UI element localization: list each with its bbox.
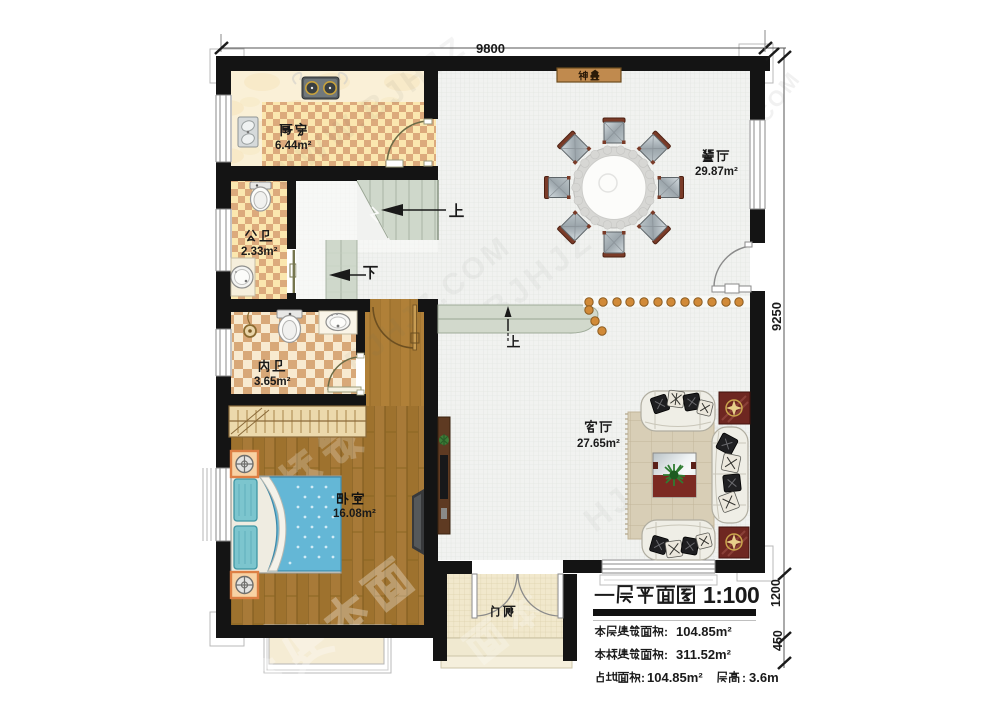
svg-text:104.85m²: 104.85m²	[676, 624, 732, 639]
svg-text:29.87m²: 29.87m²	[695, 166, 738, 178]
svg-text::: :	[641, 671, 645, 685]
svg-text:6.44m²: 6.44m²	[275, 140, 312, 152]
svg-text::: :	[664, 625, 668, 639]
svg-text:104.85m²: 104.85m²	[647, 670, 703, 685]
svg-text:9800: 9800	[476, 41, 505, 56]
svg-text:2.33m²: 2.33m²	[241, 246, 278, 258]
svg-text:3.6m: 3.6m	[749, 670, 779, 685]
svg-text::: :	[742, 671, 746, 685]
svg-text:1200: 1200	[769, 579, 783, 607]
svg-text:16.08m²: 16.08m²	[333, 508, 376, 520]
svg-text:311.52m²: 311.52m²	[676, 647, 732, 662]
svg-text:1:100: 1:100	[703, 582, 759, 608]
svg-text:9250: 9250	[769, 302, 784, 331]
svg-text:27.65m²: 27.65m²	[577, 438, 620, 450]
svg-text::: :	[664, 648, 668, 662]
svg-text:3.65m²: 3.65m²	[254, 376, 291, 388]
svg-text:450: 450	[771, 630, 785, 651]
